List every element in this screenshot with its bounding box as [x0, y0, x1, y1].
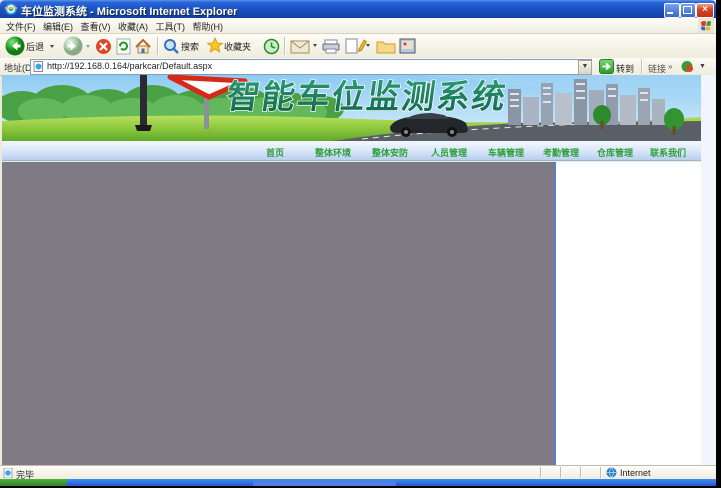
svg-text:智能车位监测系统: 智能车位监测系统 [224, 78, 509, 116]
svg-text:后退: 后退 [26, 42, 44, 52]
svg-text:收藏夹: 收藏夹 [224, 41, 251, 52]
svg-text:搜索: 搜索 [181, 41, 199, 52]
